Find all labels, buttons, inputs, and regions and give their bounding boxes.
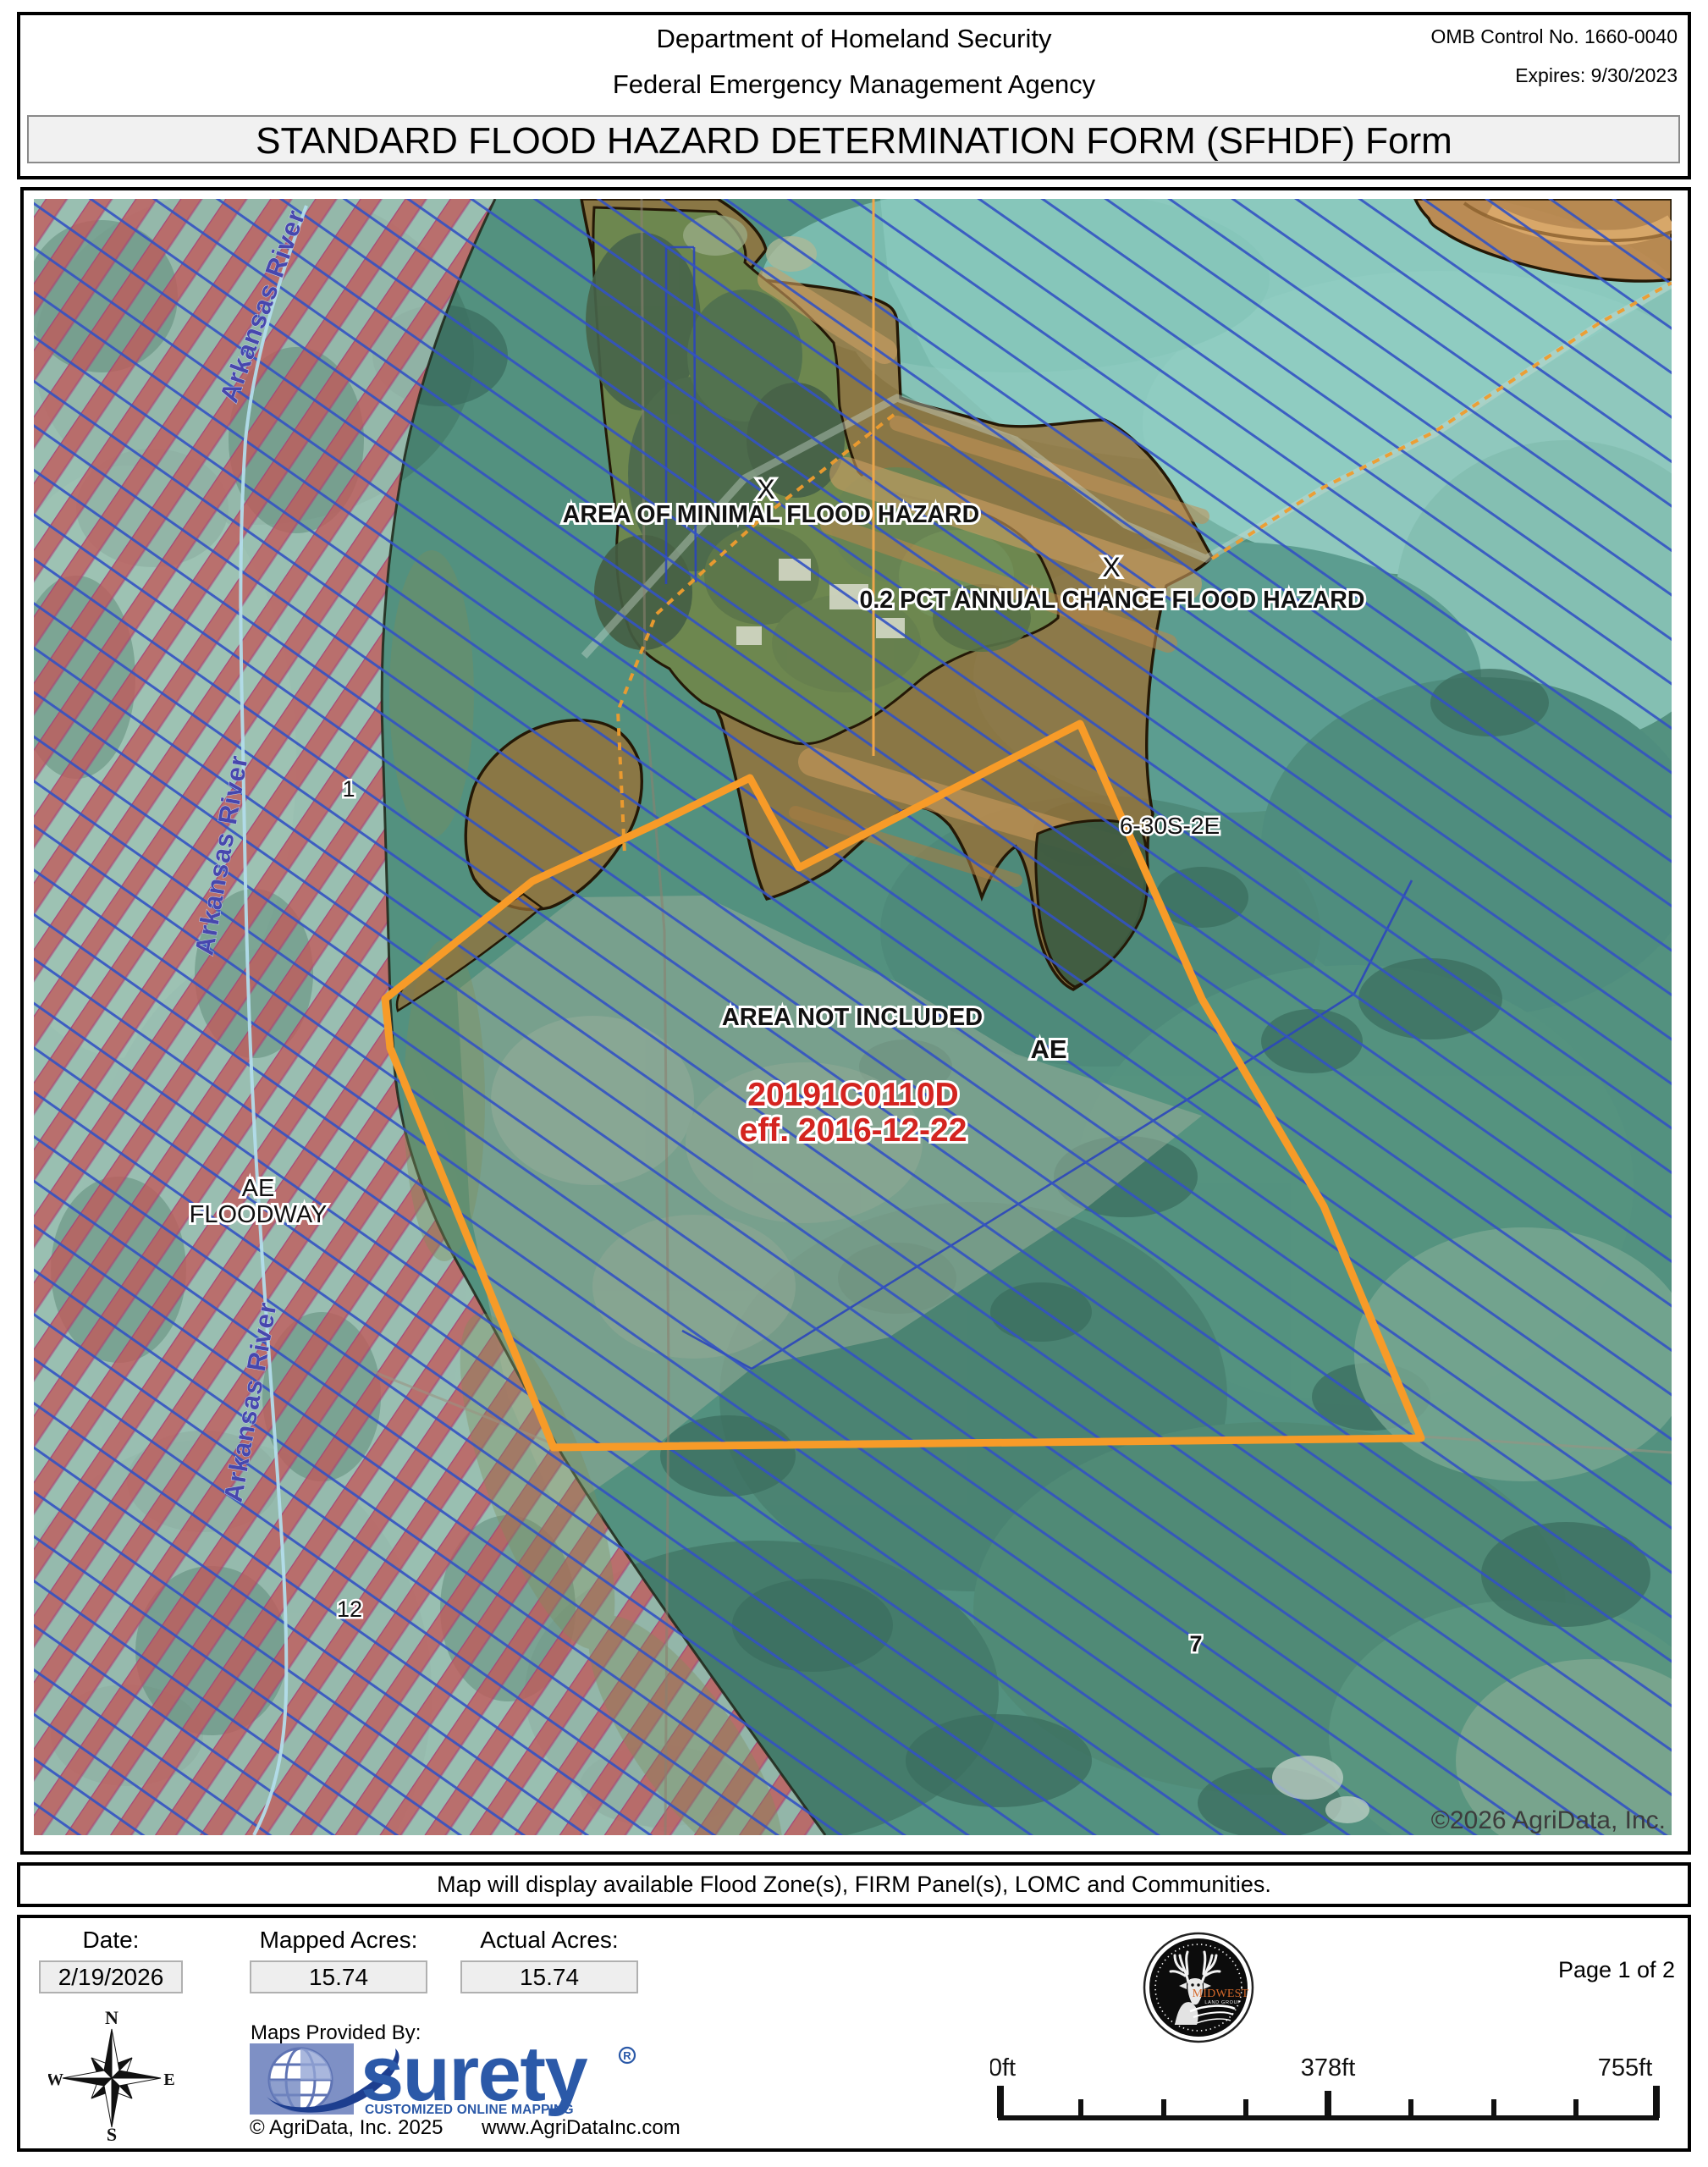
svg-text:1: 1 xyxy=(342,776,355,802)
svg-text:N: N xyxy=(105,2010,118,2028)
svg-text:MIDWEST: MIDWEST xyxy=(1193,1988,1249,2000)
svg-text:755ft: 755ft xyxy=(1598,2054,1653,2082)
svg-text:W: W xyxy=(48,2071,63,2089)
svg-text:AREA NOT INCLUDED: AREA NOT INCLUDED xyxy=(722,1004,983,1031)
svg-text:LAND GROUP: LAND GROUP xyxy=(1204,2000,1241,2005)
svg-text:E: E xyxy=(163,2071,174,2089)
svg-text:7: 7 xyxy=(1189,1631,1202,1657)
svg-text:©2026 AgriData, Inc.: ©2026 AgriData, Inc. xyxy=(1431,1806,1666,1834)
svg-text:FLOODWAY: FLOODWAY xyxy=(190,1201,328,1228)
svg-text:S: S xyxy=(107,2124,117,2142)
svg-text:378ft: 378ft xyxy=(1301,2054,1356,2082)
svg-text:AREA OF MINIMAL FLOOD HAZARD: AREA OF MINIMAL FLOOD HAZARD xyxy=(563,501,979,528)
svg-text:AE: AE xyxy=(242,1175,275,1202)
svg-text:0ft: 0ft xyxy=(990,2054,1016,2082)
svg-text:0.2 PCT ANNUAL CHANCE FLOOD HA: 0.2 PCT ANNUAL CHANCE FLOOD HAZARD xyxy=(860,587,1365,614)
svg-text:CUSTOMIZED ONLINE MAPPING: CUSTOMIZED ONLINE MAPPING xyxy=(365,2103,574,2117)
svg-text:20191C0110D: 20191C0110D xyxy=(747,1077,958,1113)
svg-text:X: X xyxy=(757,474,774,505)
svg-text:AE: AE xyxy=(1030,1034,1066,1064)
svg-text:eff. 2016-12-22: eff. 2016-12-22 xyxy=(740,1112,967,1149)
svg-text:X: X xyxy=(1102,552,1120,582)
svg-text:12: 12 xyxy=(337,1596,362,1622)
svg-text:6-30S-2E: 6-30S-2E xyxy=(1120,813,1220,839)
svg-text:R: R xyxy=(623,2049,631,2062)
